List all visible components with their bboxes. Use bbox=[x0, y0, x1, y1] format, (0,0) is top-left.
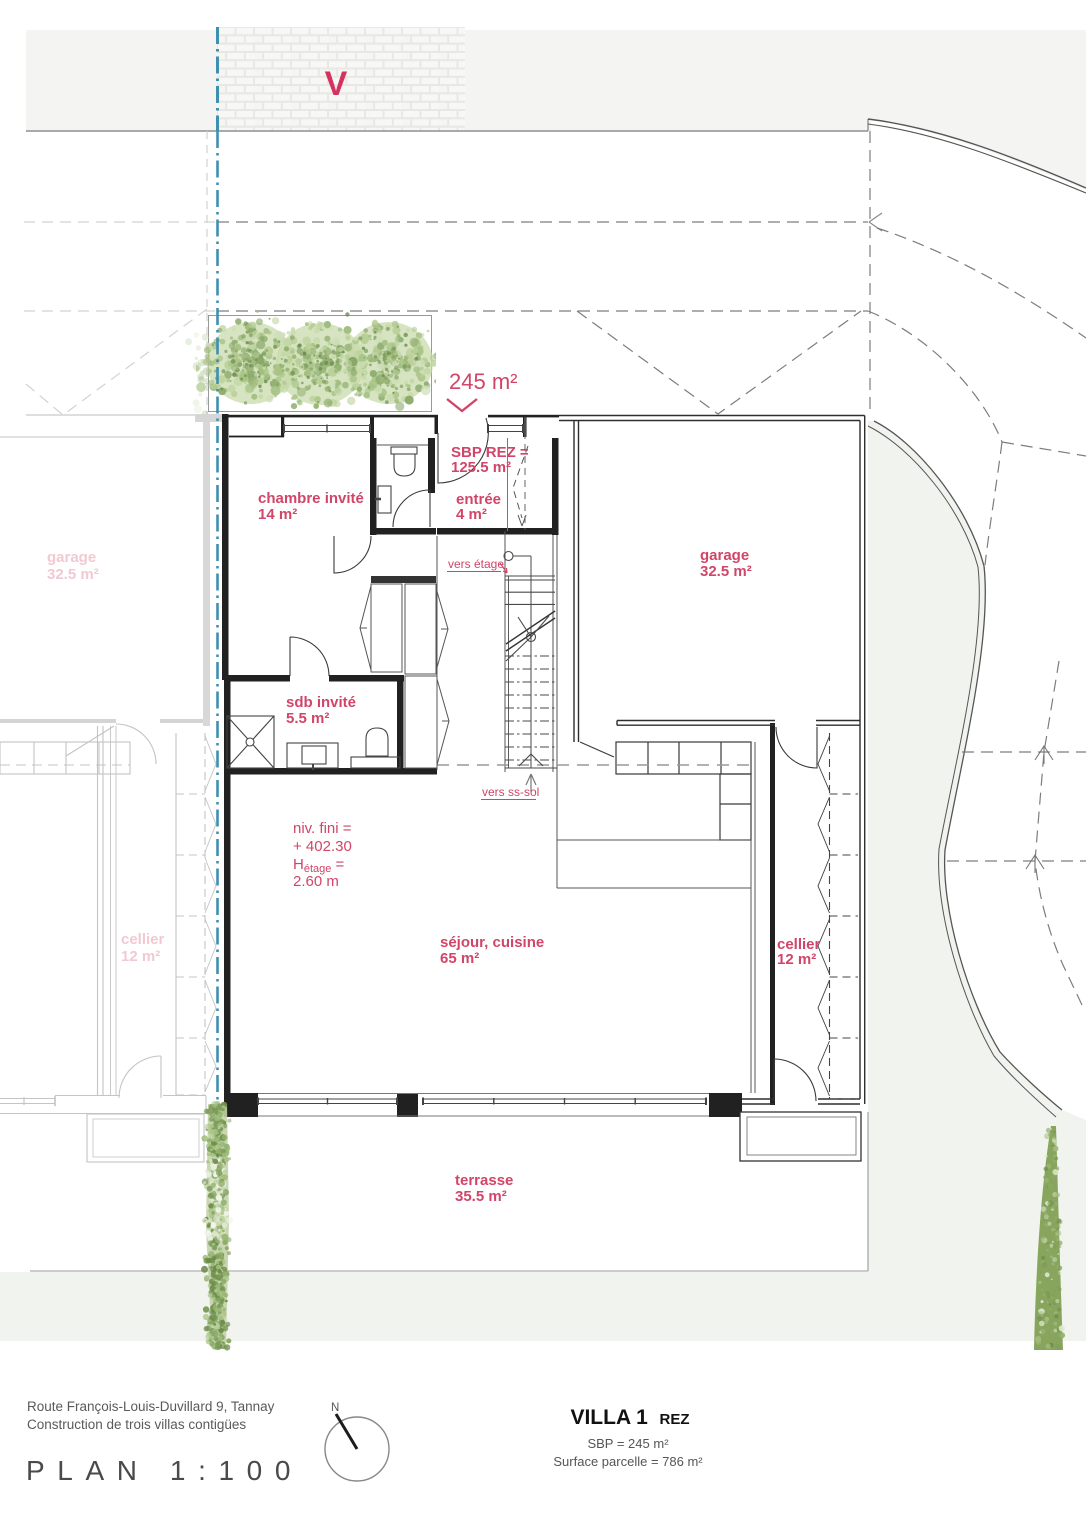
svg-text:32.5 m²: 32.5 m² bbox=[700, 563, 752, 580]
svg-text:12 m²: 12 m² bbox=[121, 948, 160, 965]
svg-text:garage: garage bbox=[47, 549, 96, 566]
svg-text:4 m²: 4 m² bbox=[456, 506, 487, 523]
svg-text:cellier: cellier bbox=[121, 931, 165, 948]
svg-text:vers ss-sol: vers ss-sol bbox=[482, 785, 539, 799]
svg-text:garage: garage bbox=[700, 547, 749, 564]
svg-text:+ 402.30: + 402.30 bbox=[293, 838, 352, 855]
svg-text:V: V bbox=[325, 65, 348, 103]
svg-text:vers étage: vers étage bbox=[448, 557, 504, 571]
svg-text:sdb invité: sdb invité bbox=[286, 694, 356, 711]
svg-text:Surface parcelle = 786 m²: Surface parcelle = 786 m² bbox=[553, 1454, 703, 1469]
svg-text:2.60 m: 2.60 m bbox=[293, 873, 339, 890]
svg-text:PLAN 1:100: PLAN 1:100 bbox=[26, 1455, 303, 1486]
svg-text:65 m²: 65 m² bbox=[440, 950, 479, 967]
svg-text:35.5 m²: 35.5 m² bbox=[455, 1188, 507, 1205]
svg-text:14 m²: 14 m² bbox=[258, 506, 297, 523]
svg-text:séjour, cuisine: séjour, cuisine bbox=[440, 934, 544, 951]
svg-text:245 m²: 245 m² bbox=[449, 369, 517, 394]
svg-text:niv. fini =: niv. fini = bbox=[293, 820, 352, 837]
svg-text:N: N bbox=[331, 1402, 339, 1414]
svg-text:SBP = 245 m²: SBP = 245 m² bbox=[587, 1436, 669, 1451]
svg-text:125.5 m²: 125.5 m² bbox=[451, 459, 511, 476]
svg-text:terrasse: terrasse bbox=[455, 1172, 513, 1189]
svg-text:chambre invité: chambre invité bbox=[258, 490, 364, 507]
svg-text:12 m²: 12 m² bbox=[777, 951, 816, 968]
svg-text:5.5 m²: 5.5 m² bbox=[286, 710, 329, 727]
svg-text:Construction de trois villas c: Construction de trois villas contigües bbox=[27, 1417, 246, 1432]
svg-text:32.5 m²: 32.5 m² bbox=[47, 566, 99, 583]
svg-text:Route François-Louis-Duvillard: Route François-Louis-Duvillard 9, Tannay bbox=[27, 1399, 275, 1414]
